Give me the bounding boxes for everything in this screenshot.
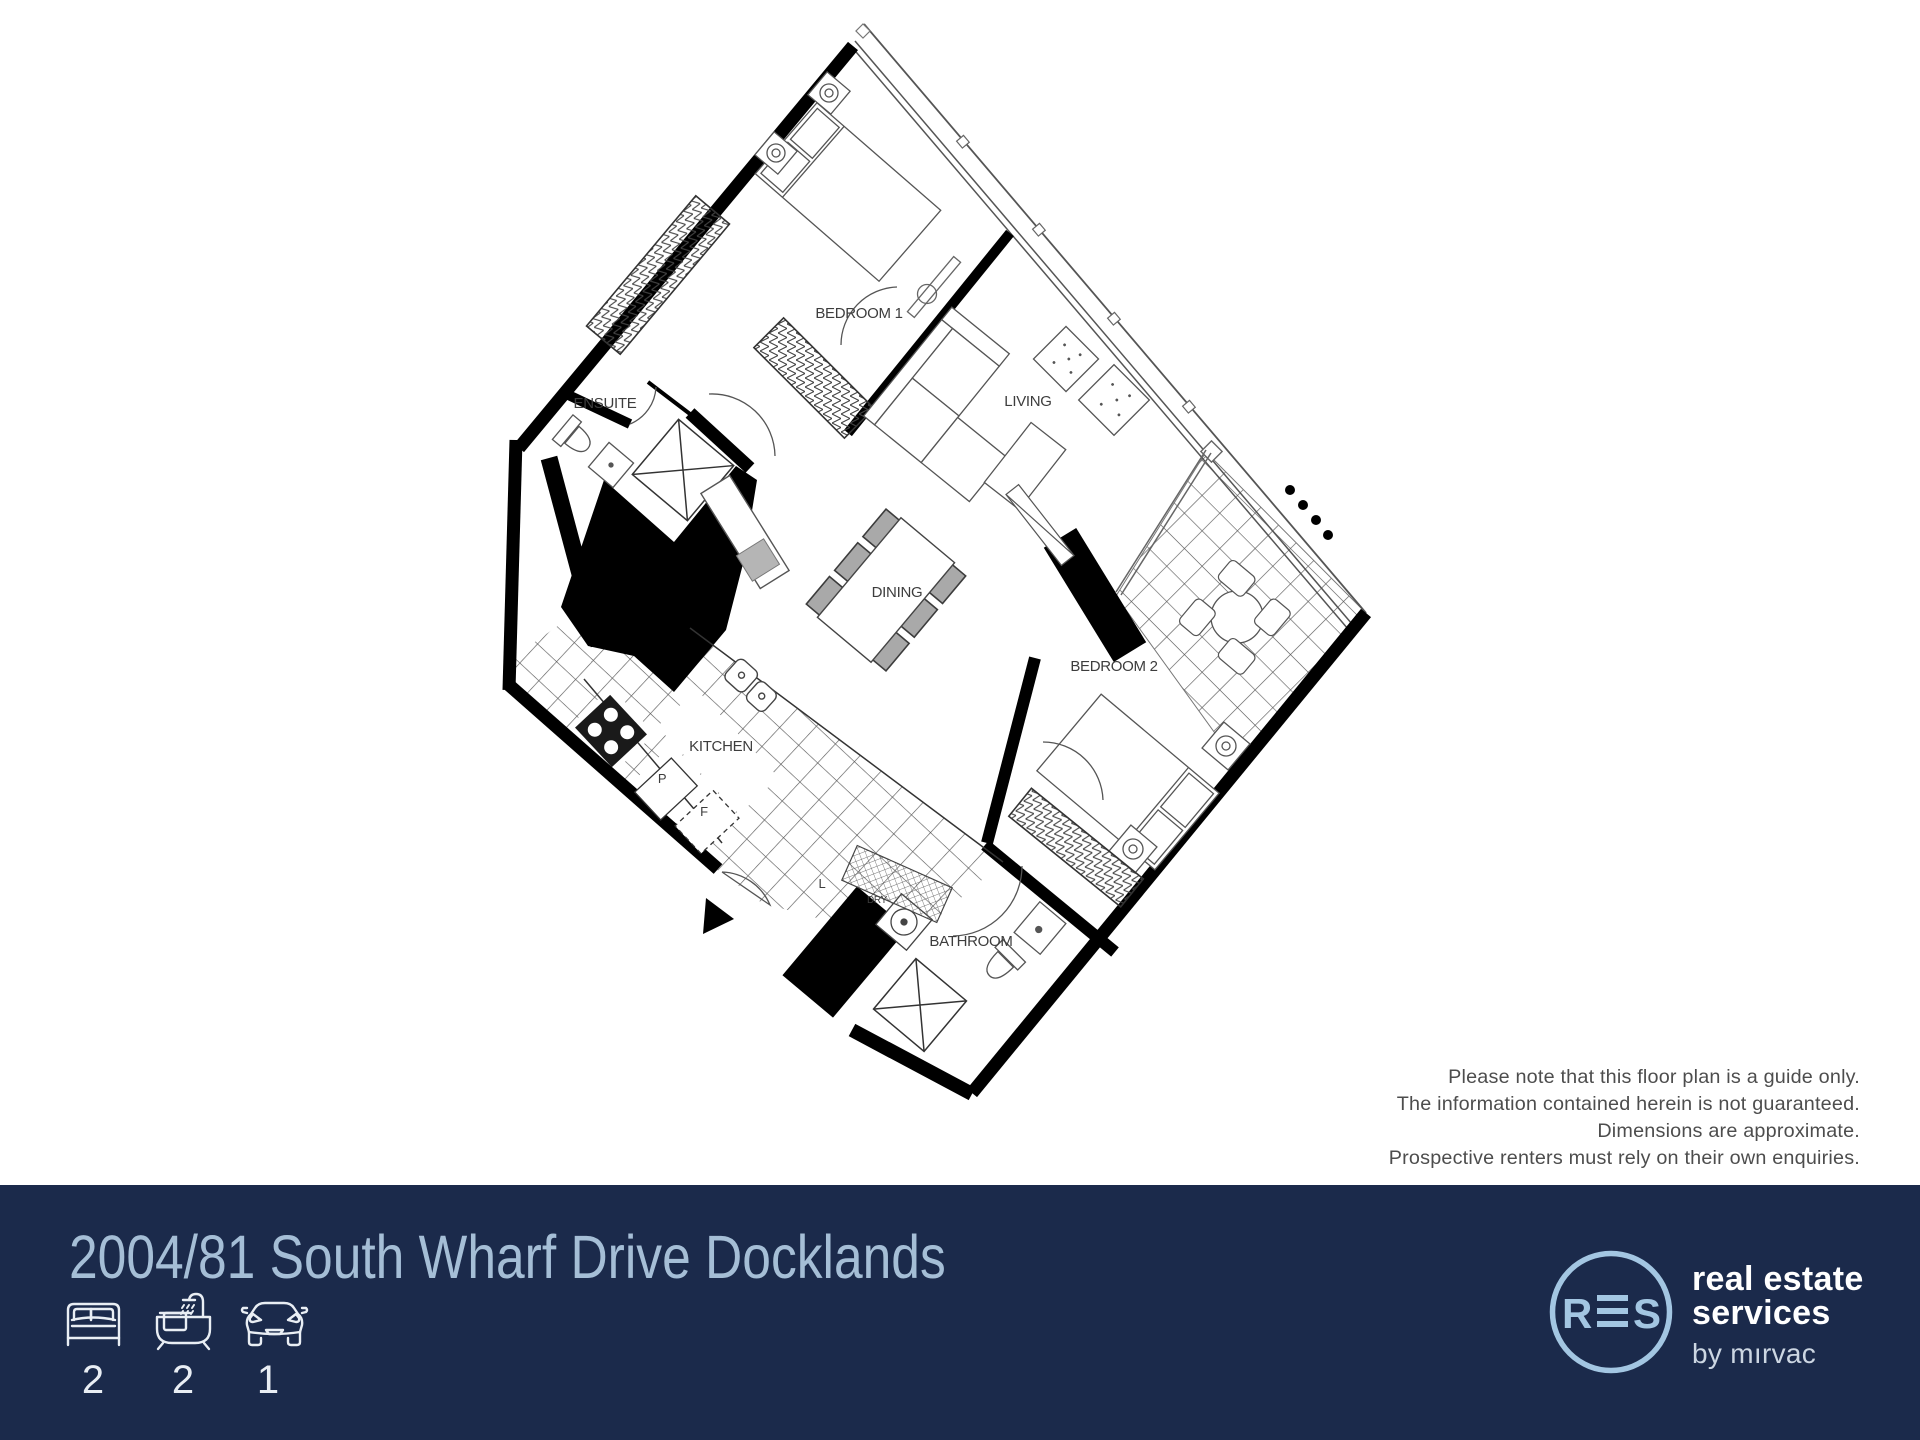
svg-text:R: R [1562,1290,1592,1337]
svg-text:S: S [1633,1290,1661,1337]
